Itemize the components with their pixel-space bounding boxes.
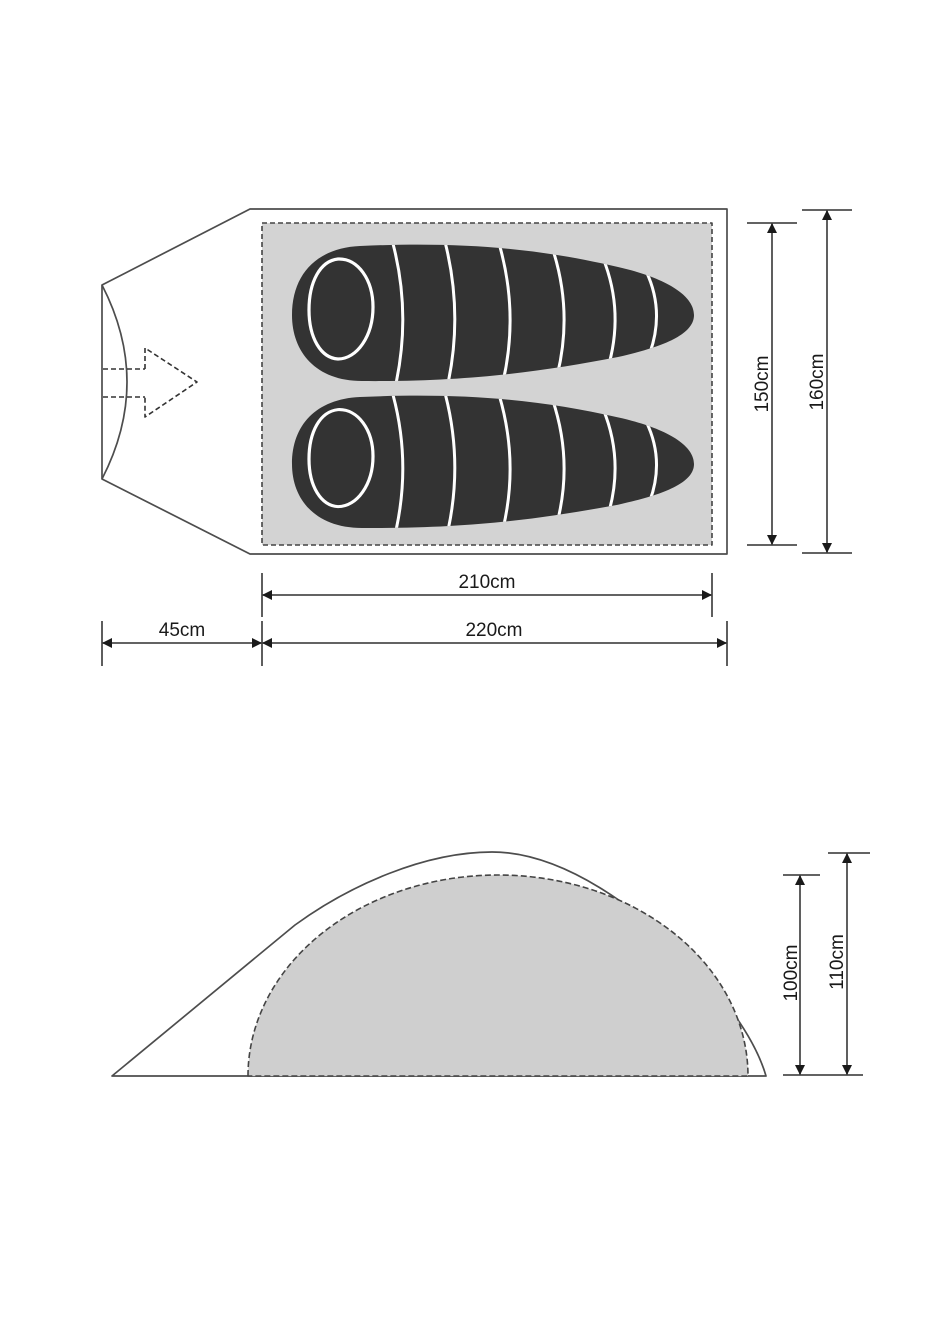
dim-inner-height: 100cm: [781, 875, 863, 1075]
dim-label-outer-height: 110cm: [827, 934, 848, 990]
dim-label-vestibule-depth: 45cm: [159, 620, 205, 641]
dim-label-outer-width: 160cm: [807, 353, 828, 410]
dim-outer-width: 160cm: [802, 210, 852, 553]
dim-outer-height: 110cm: [827, 853, 870, 1075]
tent-dimension-diagram-page: 150cm 160cm 210cm 220cm 45cm: [0, 0, 950, 1343]
dim-label-outer-length: 220cm: [465, 620, 522, 641]
dim-label-inner-height: 100cm: [781, 944, 802, 1001]
dim-floor-width: 150cm: [747, 223, 797, 545]
dim-label-floor-width: 150cm: [752, 355, 773, 412]
tent-dimension-diagram: 150cm 160cm 210cm 220cm 45cm: [0, 0, 950, 1343]
dim-vestibule-depth: 45cm: [102, 620, 262, 666]
inner-tent-dome: [248, 875, 748, 1076]
dim-outer-length: 220cm: [262, 620, 727, 666]
dim-floor-length: 210cm: [262, 572, 712, 617]
dim-label-floor-length: 210cm: [458, 572, 515, 593]
tent-top-view: 150cm 160cm 210cm 220cm 45cm: [102, 209, 852, 666]
tent-side-view: 100cm 110cm: [112, 852, 870, 1076]
